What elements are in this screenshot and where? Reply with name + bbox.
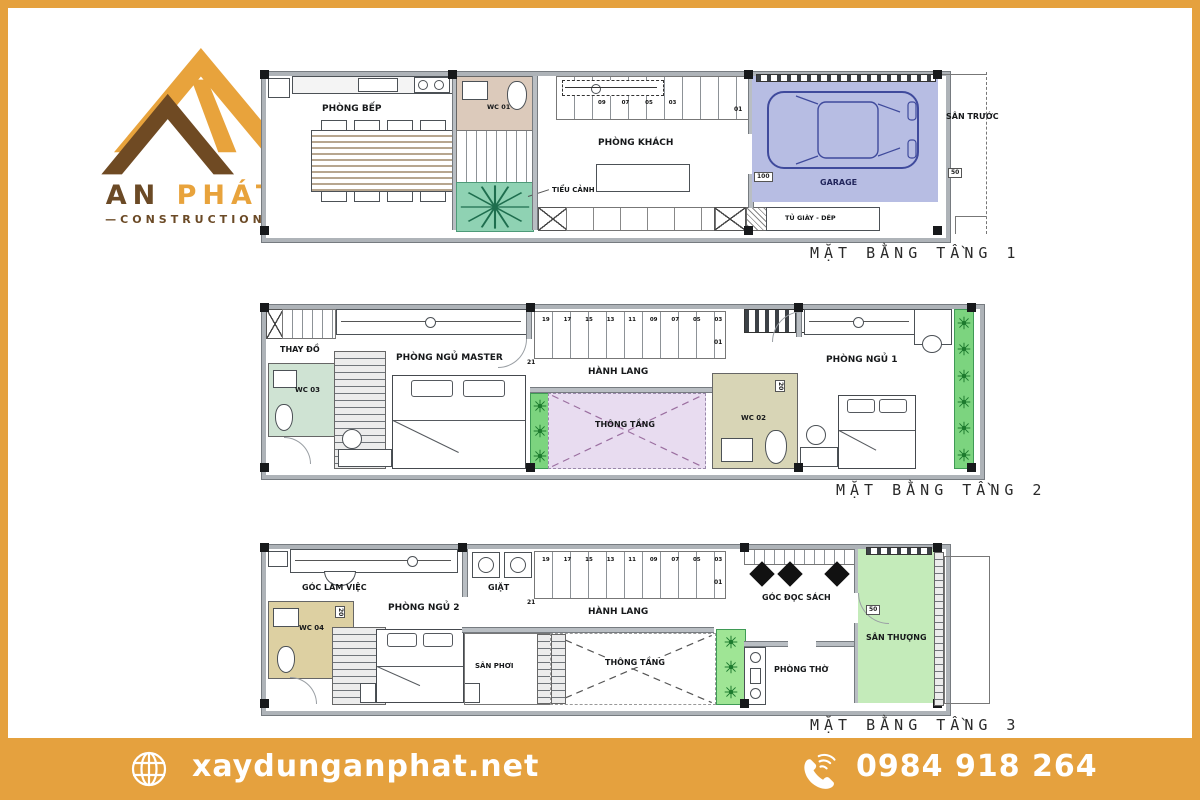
- room-label-wc3: WC 03: [295, 386, 320, 394]
- lamp: [922, 335, 942, 353]
- room-label-dressing: THAY ĐỒ: [280, 345, 320, 354]
- pillow: [463, 380, 505, 397]
- room-label-kitchen: PHÒNG BẾP: [322, 104, 381, 114]
- washer-drum: [478, 557, 494, 573]
- caption-floor3: MẶT BẰNG TẦNG 3: [810, 716, 1020, 734]
- room-wc1: WC 01: [456, 76, 534, 132]
- work-desk: [290, 549, 458, 573]
- room-drying-yard: SÂN PHƠI: [464, 633, 552, 705]
- door-arc: [498, 339, 527, 368]
- room-label-reading: GÓC ĐỌC SÁCH: [762, 593, 831, 602]
- column: [260, 543, 269, 552]
- room-label-garden: TIỂU CẢNH: [552, 186, 595, 194]
- stove-burner: [418, 80, 428, 90]
- pillow: [423, 633, 453, 647]
- column: [967, 463, 976, 472]
- planter-strip: [954, 309, 974, 469]
- wardrobe: [804, 309, 916, 335]
- stair-marker: 01: [734, 106, 742, 113]
- garage-roller-door: [756, 74, 936, 82]
- room-label-laundry: GIẶT: [488, 583, 509, 592]
- column: [260, 303, 269, 312]
- plant-icon: [724, 635, 738, 649]
- wc-sink: [721, 438, 753, 462]
- room-wc2: 20 WC 02: [712, 373, 798, 469]
- terrace-window-strip: [866, 547, 932, 555]
- void-x-icon: [551, 634, 715, 704]
- room-label-bedroom2: PHÒNG NGỦ 2: [388, 603, 459, 613]
- room-wc3: WC 03: [268, 363, 336, 437]
- closet-strip: [282, 309, 336, 339]
- room-label-front-yard: SÂN TRƯỚC: [946, 112, 999, 121]
- room-label-garage: GARAGE: [820, 178, 857, 187]
- void-open-space3: THÔNG TẦNG: [550, 633, 716, 705]
- caption-floor2: MẶT BẰNG TẦNG 2: [836, 481, 1046, 499]
- column: [448, 70, 457, 79]
- desk: [800, 447, 838, 467]
- room-label-hallway3: HÀNH LANG: [588, 607, 648, 617]
- wall: [526, 309, 532, 339]
- blanket-fold: [839, 430, 876, 451]
- property-line: [986, 72, 987, 234]
- wardrobe: [336, 309, 528, 335]
- dimension-20: 20: [775, 380, 785, 392]
- candle: [750, 652, 761, 663]
- wardrobe-slider: [853, 317, 864, 328]
- wc-sink: [273, 608, 299, 627]
- caption-floor1: MẶT BẰNG TẦNG 1: [810, 244, 1020, 262]
- blanket-line: [393, 420, 525, 421]
- room-label-shoe-cabinet: TỦ GIÀY - DÉP: [785, 214, 836, 222]
- stove-burner: [434, 80, 444, 90]
- room-label-void2: THÔNG TẦNG: [595, 420, 655, 429]
- dining-chair: [420, 191, 446, 202]
- door-arc: [290, 677, 317, 704]
- blanket-line: [839, 430, 915, 431]
- room-label-living: PHÒNG KHÁCH: [598, 138, 673, 148]
- dining-table: [311, 130, 458, 192]
- floor-cushion: [777, 561, 802, 586]
- wc-toilet: [765, 430, 787, 464]
- dining-chair: [387, 191, 413, 202]
- shelf-row: [566, 207, 716, 231]
- wc-sink: [273, 370, 297, 388]
- fan-box: [538, 207, 568, 231]
- room-label-terrace: SÂN THƯỢNG: [866, 633, 927, 642]
- dimension-20: 20: [335, 606, 345, 618]
- logo-triangle-icon: [98, 48, 288, 176]
- blanket-fold: [393, 420, 459, 453]
- fan-box: [714, 207, 746, 231]
- wall: [462, 549, 468, 597]
- column: [933, 70, 942, 79]
- column: [740, 543, 749, 552]
- plant-icon: [957, 369, 971, 383]
- room-label-bedroom1: PHÒNG NGỦ 1: [826, 355, 897, 365]
- desk-line: [295, 560, 451, 561]
- yard-edge: [955, 216, 986, 217]
- coffee-table: [596, 164, 690, 192]
- dining-chair: [354, 120, 380, 131]
- pillow: [847, 399, 875, 413]
- dining-chair: [354, 191, 380, 202]
- dimension-100: 100: [754, 172, 773, 182]
- room-label-void3: THÔNG TẦNG: [605, 658, 665, 667]
- floorplan-2: THAY ĐỒ WC 03 PHÒNG NGỦ MASTER 19 17 15 …: [262, 305, 984, 479]
- room-label-master: PHÒNG NGỦ MASTER: [396, 353, 503, 363]
- rail-line: [565, 87, 657, 88]
- yard-edge: [942, 74, 986, 75]
- room-label-wc4: WC 04: [299, 624, 324, 632]
- dining-chair: [420, 120, 446, 131]
- room-label-worship: PHÒNG THỜ: [774, 665, 829, 674]
- column: [458, 543, 467, 552]
- yard-edge: [955, 216, 956, 234]
- floorplan-1: PHÒNG BẾP WC 01 TIỂU CẢNH 09 07 05 03: [262, 72, 950, 242]
- cabinet-box: [268, 551, 288, 567]
- footer-phone: 0984 918 264: [856, 749, 1098, 784]
- room-garage: GARAGE 100: [752, 76, 938, 202]
- garden-patch: [456, 182, 534, 232]
- column: [260, 699, 269, 708]
- column: [744, 70, 753, 79]
- wc-toilet: [275, 404, 293, 431]
- dining-chair: [321, 120, 347, 131]
- void-open-space2: THÔNG TẦNG: [548, 393, 706, 469]
- stair-marker-start: 21: [527, 359, 535, 366]
- floor-cushion: [824, 561, 849, 586]
- plant-burst-icon: [457, 183, 533, 231]
- pillow: [411, 380, 453, 397]
- blanket-fold: [377, 666, 421, 686]
- stairs-lower: [456, 130, 534, 184]
- column: [260, 463, 269, 472]
- stair-marker-start: 21: [527, 599, 535, 606]
- altar-cabinet: [744, 647, 766, 705]
- column: [526, 303, 535, 312]
- phone-icon: [796, 750, 838, 792]
- stair-marker-end: 01: [714, 579, 722, 586]
- bed-master: [392, 375, 526, 469]
- pillow: [387, 633, 417, 647]
- plant-icon: [533, 424, 547, 438]
- planter-strip: [530, 393, 550, 469]
- room-label-work-corner: GÓC LÀM VIỆC: [302, 583, 367, 592]
- pillow: [879, 399, 907, 413]
- room-label-hallway2: HÀNH LANG: [588, 367, 648, 377]
- poster-canvas: AN PHÁT —CONSTRUCTION— PHÒNG BẾP WC 01: [0, 0, 1200, 800]
- plant-icon: [533, 449, 547, 463]
- globe-icon: [130, 750, 168, 788]
- planter-strip: [716, 629, 746, 705]
- plant-icon: [533, 399, 547, 413]
- column: [967, 303, 976, 312]
- column: [933, 226, 942, 235]
- bed-1: [838, 395, 916, 469]
- louver-strip: [537, 634, 551, 704]
- plant-icon: [724, 685, 738, 699]
- room-label-wc2: WC 02: [741, 414, 766, 422]
- floor-cushion: [749, 561, 774, 586]
- column: [526, 463, 535, 472]
- desk: [338, 449, 392, 467]
- rail-post: [591, 84, 601, 94]
- blanket-line: [377, 666, 463, 667]
- stair-step-numbers: 19 17 15 13 11 09 07 05 03: [542, 557, 722, 563]
- column: [260, 70, 269, 79]
- room-label-drying: SÂN PHƠI: [475, 662, 513, 670]
- car-top-view: [764, 86, 924, 174]
- balcony-outline: [944, 556, 990, 704]
- stair-marker-end: 01: [714, 339, 722, 346]
- plant-icon: [724, 660, 738, 674]
- column: [744, 226, 753, 235]
- plant-icon: [957, 342, 971, 356]
- side-table: [360, 683, 376, 703]
- stair-step-numbers: 19 17 15 13 11 09 07 05 03: [542, 317, 722, 323]
- washer-drum: [510, 557, 526, 573]
- dining-chair: [387, 120, 413, 131]
- plant-icon: [957, 421, 971, 435]
- chair: [342, 429, 362, 449]
- dimension-50: 50: [948, 168, 962, 178]
- incense-holder: [750, 668, 761, 684]
- chair: [806, 425, 826, 445]
- wc-toilet: [277, 646, 295, 673]
- shoe-cabinet: TỦ GIÀY - DÉP: [766, 207, 880, 231]
- candle: [750, 688, 761, 699]
- column: [794, 463, 803, 472]
- bed-2: [376, 629, 464, 703]
- fridge: [268, 78, 290, 98]
- footer-website: xaydunganphat.net: [192, 749, 539, 784]
- door-arc: [284, 437, 311, 464]
- dining-chair: [321, 191, 347, 202]
- plant-icon: [957, 395, 971, 409]
- ladder-strip: [551, 634, 566, 704]
- footer-bar: xaydunganphat.net 0984 918 264: [0, 738, 1200, 800]
- wardrobe-slider: [425, 317, 436, 328]
- stair-step-numbers: 09 07 05 03: [598, 100, 676, 106]
- room-label-wc1: WC 01: [487, 103, 510, 111]
- wall: [816, 641, 858, 647]
- column: [740, 699, 749, 708]
- column: [933, 543, 942, 552]
- dimension-50: 50: [866, 605, 880, 615]
- rail-ticks: [934, 552, 944, 706]
- wc-sink: [462, 81, 488, 100]
- desk-slider: [407, 556, 418, 567]
- floorplan-3: GÓC LÀM VIỆC WC 04 20 PHÒNG NGỦ 2 GIẶT 1…: [262, 545, 950, 715]
- plant-icon: [957, 448, 971, 462]
- logo-word-an: AN: [106, 180, 162, 211]
- room-terrace: 50 SÂN THƯỢNG: [858, 549, 938, 703]
- stair-rail: [562, 80, 664, 96]
- plant-icon: [957, 316, 971, 330]
- column: [794, 303, 803, 312]
- kitchen-sink: [358, 78, 398, 92]
- void-x-icon: [549, 394, 705, 468]
- column: [260, 226, 269, 235]
